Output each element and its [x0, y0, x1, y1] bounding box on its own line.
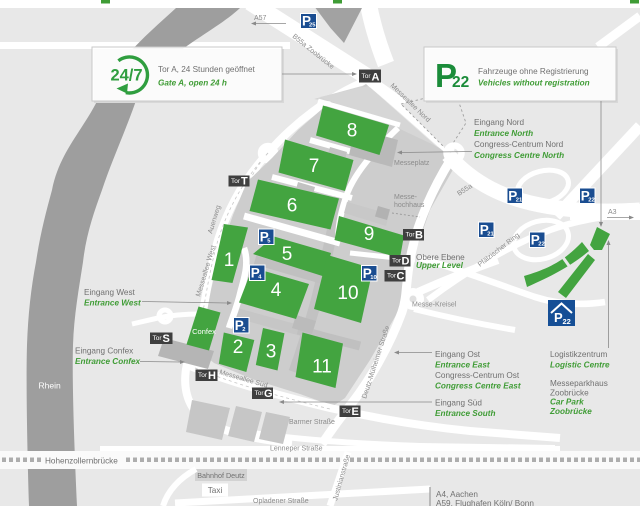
svg-text:B: B: [415, 230, 423, 242]
svg-text:Eingang Nord: Eingang Nord: [474, 118, 525, 127]
svg-text:Congress-Centrum Nord: Congress-Centrum Nord: [474, 140, 564, 149]
svg-text:T: T: [241, 176, 248, 188]
svg-text:6: 6: [287, 196, 298, 217]
svg-text:Entrance West: Entrance West: [84, 299, 141, 308]
svg-text:9: 9: [364, 224, 375, 245]
svg-text:21: 21: [516, 198, 523, 204]
svg-text:Tor: Tor: [392, 258, 402, 265]
svg-text:Messe-: Messe-: [394, 194, 418, 201]
svg-text:2: 2: [242, 327, 245, 333]
svg-text:Entrance Confex: Entrance Confex: [75, 357, 141, 366]
svg-text:1: 1: [224, 250, 235, 271]
svg-text:Messeparkhaus: Messeparkhaus: [550, 379, 608, 388]
svg-text:Eingang West: Eingang West: [84, 288, 136, 297]
svg-text:Bahnhof Deutz: Bahnhof Deutz: [197, 471, 245, 480]
svg-text:Fahrzeuge ohne Registrierung: Fahrzeuge ohne Registrierung: [478, 67, 589, 76]
svg-text:Confex: Confex: [192, 327, 216, 336]
svg-text:Hohenzollernbrücke: Hohenzollernbrücke: [45, 457, 118, 466]
svg-text:Tor: Tor: [387, 273, 397, 280]
svg-text:S: S: [163, 333, 170, 345]
svg-text:Eingang Ost: Eingang Ost: [435, 350, 481, 359]
svg-text:H: H: [208, 370, 216, 382]
svg-text:Barmer Straße: Barmer Straße: [289, 419, 335, 426]
svg-text:22: 22: [588, 198, 594, 204]
svg-text:Gate A, open 24 h: Gate A, open 24 h: [158, 79, 227, 88]
svg-text:hochhaus: hochhaus: [394, 202, 425, 209]
svg-text:10: 10: [337, 283, 358, 304]
svg-text:Tor: Tor: [362, 73, 372, 80]
svg-text:Opladener Straße: Opladener Straße: [253, 498, 309, 505]
svg-text:A3: A3: [608, 209, 617, 216]
svg-text:Tor: Tor: [153, 335, 163, 342]
svg-text:Tor: Tor: [342, 408, 352, 415]
svg-text:Upper Level: Upper Level: [416, 261, 464, 270]
svg-text:Tor: Tor: [198, 372, 208, 379]
svg-text:Taxi: Taxi: [208, 486, 223, 495]
svg-text:A4, Aachen: A4, Aachen: [436, 490, 478, 499]
svg-text:Lenneper Straße: Lenneper Straße: [270, 446, 323, 453]
svg-text:A: A: [372, 72, 380, 84]
svg-text:22: 22: [452, 74, 469, 91]
svg-text:10: 10: [370, 275, 376, 281]
svg-text:Rhein: Rhein: [39, 381, 61, 391]
svg-text:Congress Centre East: Congress Centre East: [435, 382, 521, 391]
svg-text:A57: A57: [254, 15, 267, 22]
svg-text:25: 25: [309, 22, 316, 28]
svg-text:Entrance North: Entrance North: [474, 129, 533, 138]
svg-text:Logistikzentrum: Logistikzentrum: [550, 350, 608, 359]
svg-text:Zoobrücke: Zoobrücke: [549, 407, 592, 416]
svg-text:A59, Flughafen Köln/ Bonn: A59, Flughafen Köln/ Bonn: [436, 499, 534, 506]
svg-text:22: 22: [538, 242, 544, 248]
svg-text:22: 22: [563, 317, 571, 326]
svg-text:24/7: 24/7: [110, 67, 142, 85]
svg-text:Eingang Süd: Eingang Süd: [435, 399, 482, 408]
svg-text:D: D: [402, 256, 410, 268]
svg-text:Logistic Centre: Logistic Centre: [550, 361, 610, 370]
svg-text:Tor A, 24 Stunden geöffnet: Tor A, 24 Stunden geöffnet: [158, 65, 256, 74]
svg-text:3: 3: [266, 342, 277, 363]
svg-text:21: 21: [487, 232, 494, 238]
svg-text:Tor: Tor: [255, 390, 265, 397]
svg-text:Tor: Tor: [231, 178, 241, 185]
svg-text:Congress-Centrum Ost: Congress-Centrum Ost: [435, 371, 520, 380]
svg-text:11: 11: [312, 357, 332, 378]
svg-text:Entrance South: Entrance South: [435, 409, 496, 418]
svg-text:Car Park: Car Park: [550, 398, 584, 407]
svg-text:Vehicles without registration: Vehicles without registration: [478, 79, 590, 88]
svg-text:Entrance East: Entrance East: [435, 361, 490, 370]
svg-text:E: E: [352, 406, 359, 418]
svg-text:Tor: Tor: [406, 232, 416, 239]
svg-text:4: 4: [271, 280, 282, 301]
svg-text:7: 7: [309, 156, 320, 177]
svg-text:8: 8: [347, 121, 358, 142]
svg-text:G: G: [264, 388, 273, 400]
svg-text:C: C: [397, 271, 405, 283]
svg-text:Messe-Kreisel: Messe-Kreisel: [412, 302, 457, 309]
svg-text:Eingang Confex: Eingang Confex: [75, 347, 133, 356]
svg-text:Zoobrücke: Zoobrücke: [550, 389, 589, 398]
svg-text:5: 5: [282, 244, 293, 265]
svg-text:Messeplatz: Messeplatz: [394, 160, 430, 167]
svg-text:2: 2: [233, 337, 244, 358]
svg-text:Congress Centre North: Congress Centre North: [474, 151, 564, 160]
